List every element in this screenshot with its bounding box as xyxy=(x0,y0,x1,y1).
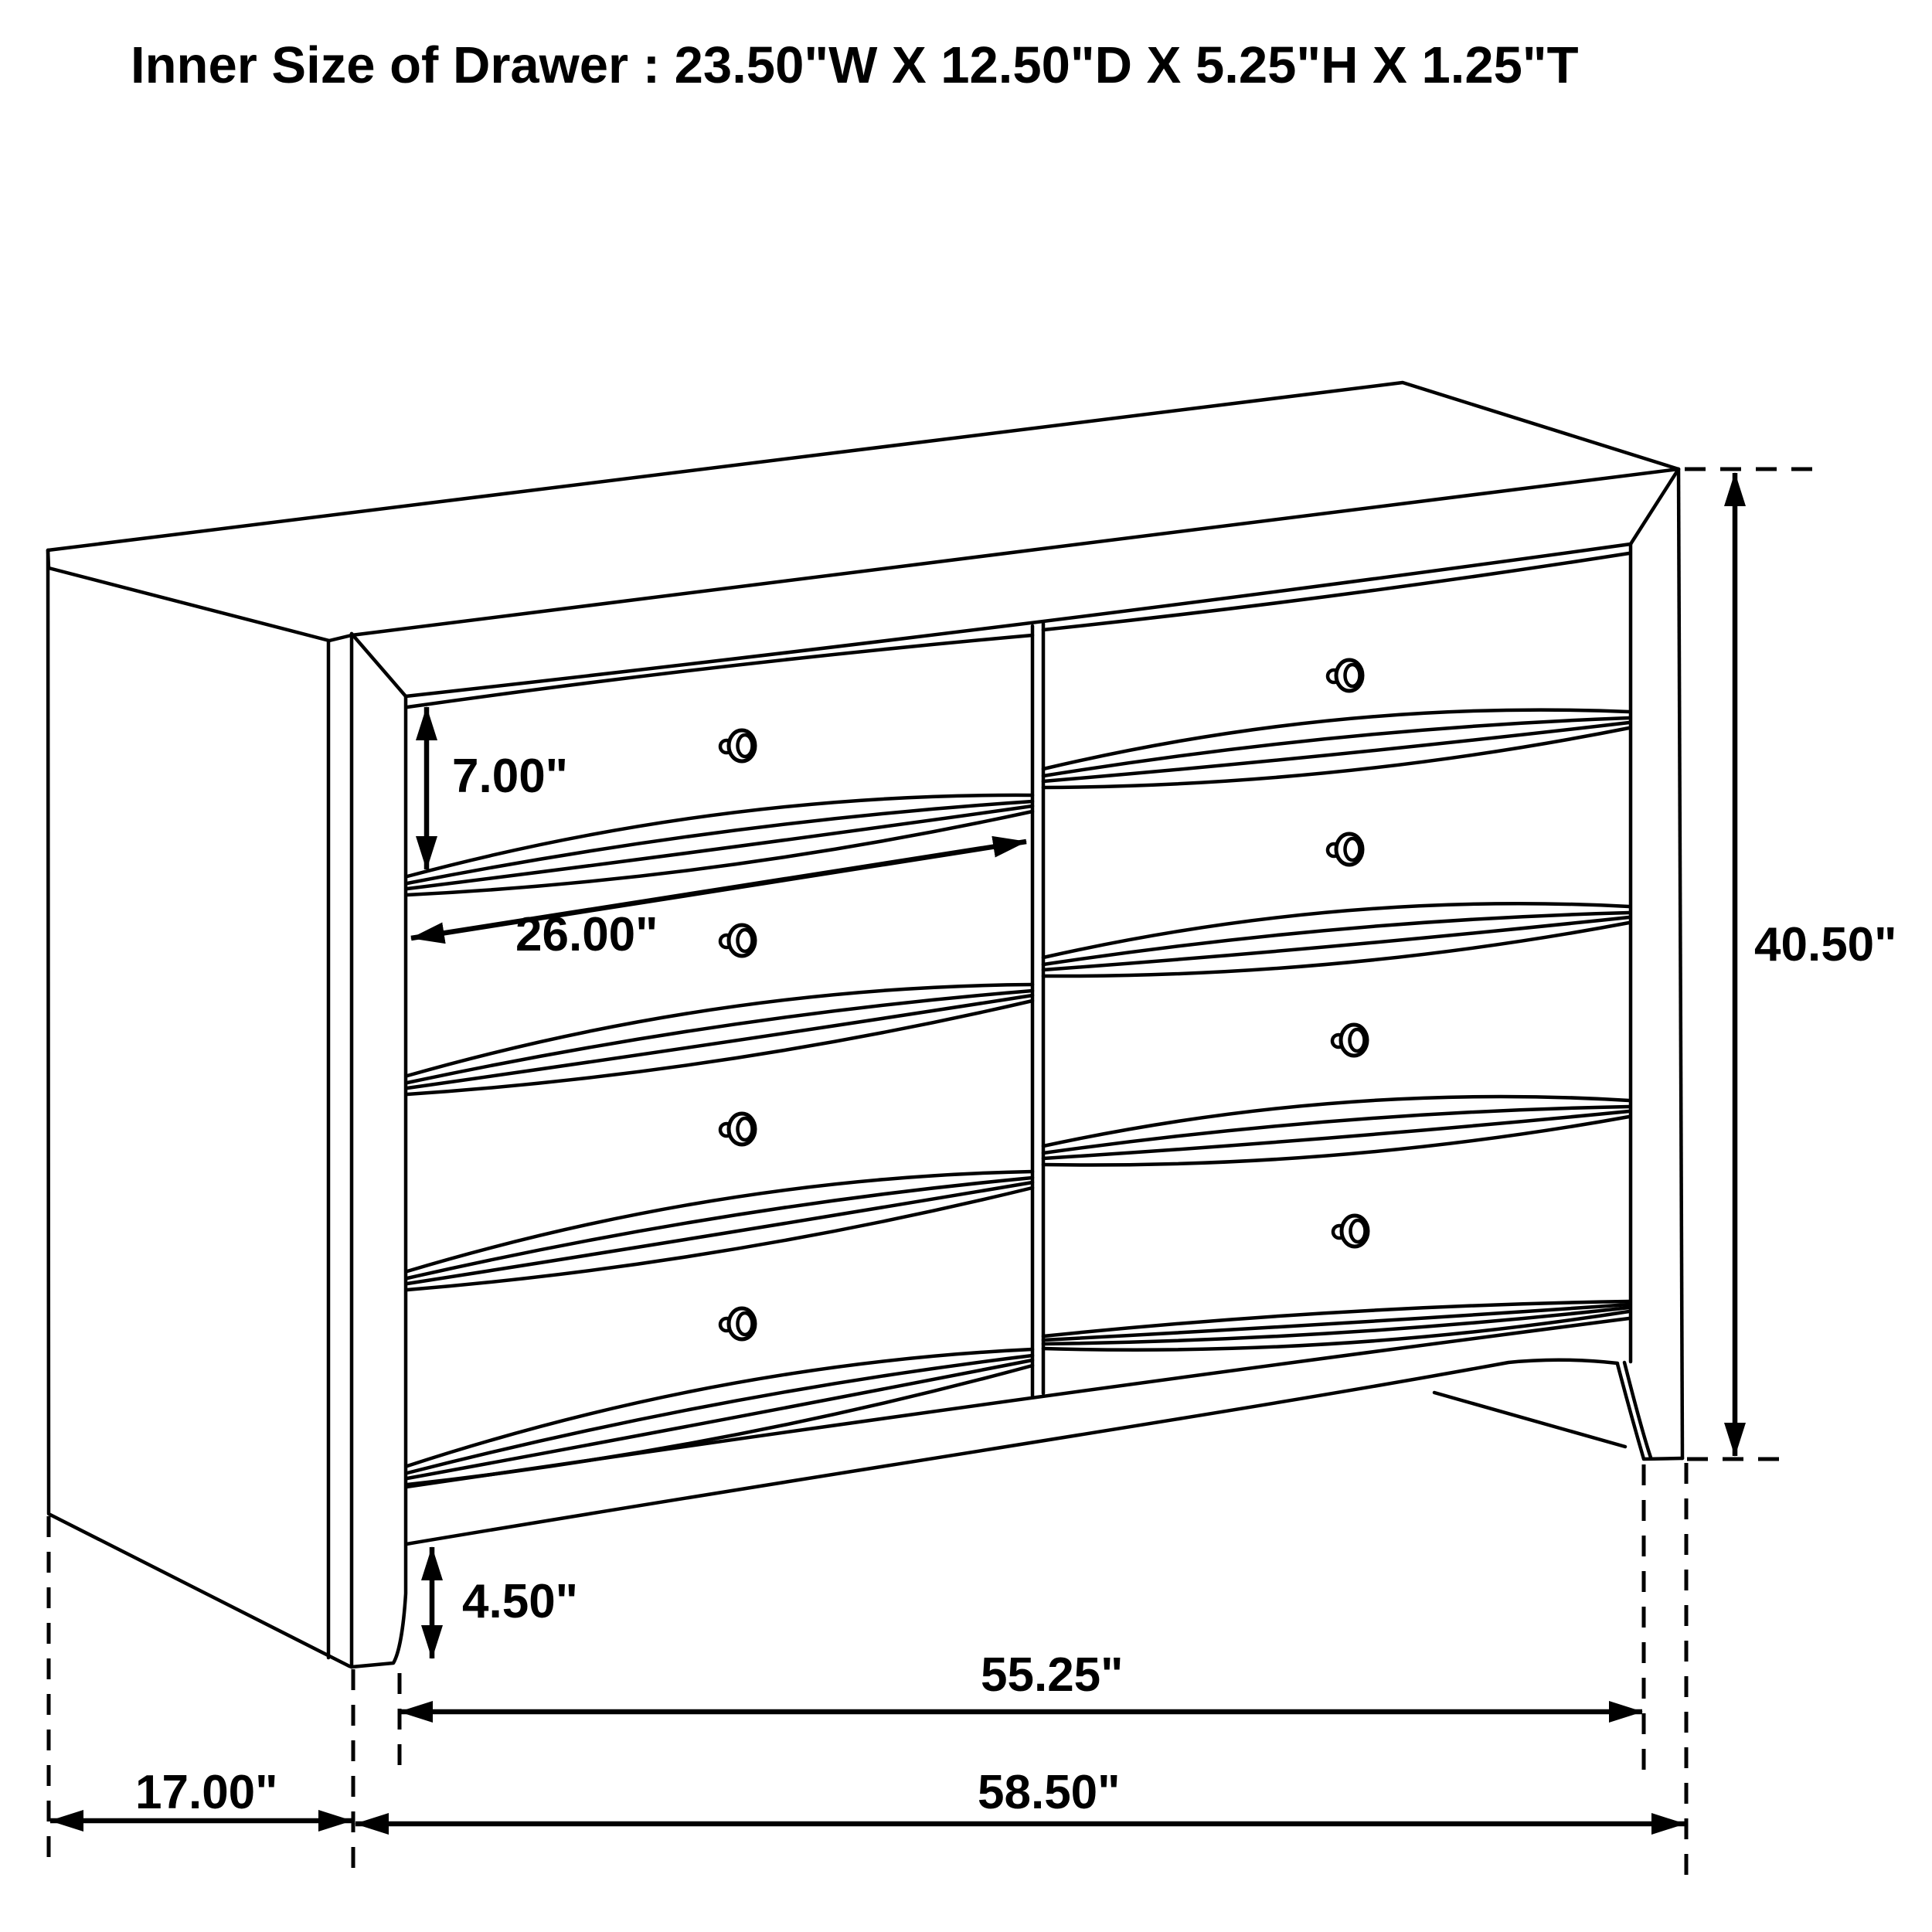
svg-text:Inner Size of Drawer : 23.50"W: Inner Size of Drawer : 23.50"W X 12.50"D… xyxy=(131,36,1579,94)
svg-text:4.50": 4.50" xyxy=(462,1575,578,1628)
svg-text:26.00": 26.00" xyxy=(515,908,658,961)
svg-text:7.00": 7.00" xyxy=(452,750,568,803)
svg-text:40.50": 40.50" xyxy=(1754,918,1897,971)
svg-text:58.50": 58.50" xyxy=(978,1766,1121,1819)
svg-text:55.25": 55.25" xyxy=(981,1648,1124,1702)
svg-text:17.00": 17.00" xyxy=(135,1766,278,1819)
